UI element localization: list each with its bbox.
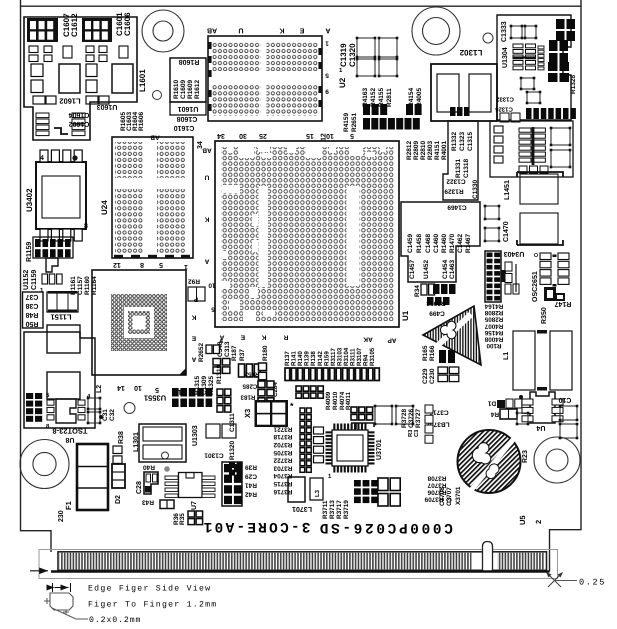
- svg-text:R2805: R2805: [484, 316, 503, 323]
- svg-text:C29: C29: [245, 472, 257, 479]
- svg-text:R3105: R3105: [369, 347, 376, 366]
- svg-text:R180: R180: [262, 345, 269, 361]
- svg-text:R1159: R1159: [26, 242, 33, 262]
- svg-text:5: 5: [211, 305, 215, 312]
- svg-text:C313: C313: [224, 341, 231, 357]
- svg-text:R1612: R1612: [194, 79, 201, 99]
- svg-text:U1603: U1603: [97, 103, 118, 110]
- svg-text:L1151: L1151: [51, 313, 72, 322]
- svg-text:R3716: R3716: [273, 488, 292, 495]
- svg-text:R100: R100: [486, 342, 502, 349]
- svg-text:R2809: R2809: [413, 140, 420, 160]
- svg-text:A: A: [191, 355, 196, 362]
- svg-text:U2: U2: [338, 77, 347, 88]
- svg-text:R1329: R1329: [444, 187, 464, 194]
- svg-text:30: 30: [239, 132, 247, 139]
- svg-text:X3: X3: [243, 409, 252, 418]
- svg-text:AB: AB: [207, 26, 217, 33]
- svg-text:R4001: R4001: [441, 140, 448, 160]
- svg-text:R92: R92: [188, 277, 200, 284]
- svg-text:C1454: C1454: [442, 259, 449, 279]
- svg-text:25: 25: [259, 132, 267, 139]
- svg-text:R1608: R1608: [179, 58, 200, 65]
- svg-text:C1311: C1311: [229, 413, 236, 432]
- svg-text:R166: R166: [429, 345, 436, 361]
- svg-text:U1601: U1601: [178, 105, 199, 112]
- svg-text:34: 34: [217, 132, 225, 139]
- svg-text:U24: U24: [100, 200, 109, 215]
- svg-text:TSOT23-8: TSOT23-8: [52, 427, 87, 436]
- svg-text:8: 8: [140, 261, 144, 268]
- svg-text:R152: R152: [244, 371, 259, 378]
- svg-text:R2812: R2812: [406, 140, 413, 160]
- svg-text:5: 5: [159, 261, 163, 268]
- svg-text:U3551: U3551: [144, 394, 166, 403]
- svg-text:C1322: C1322: [446, 177, 466, 184]
- svg-text:R: R: [283, 333, 288, 340]
- svg-text:C1315: C1315: [467, 131, 474, 151]
- svg-text:R40: R40: [143, 463, 155, 470]
- svg-text:R3721: R3721: [273, 425, 292, 432]
- svg-text:0.25: 0.25: [579, 578, 606, 588]
- svg-text:K: K: [191, 313, 196, 320]
- svg-text:R1467: R1467: [465, 233, 472, 253]
- svg-text:R3718: R3718: [273, 433, 292, 440]
- svg-text:U4: U4: [536, 424, 545, 431]
- svg-text:R1609: R1609: [187, 79, 194, 99]
- svg-text:C1460: C1460: [433, 233, 440, 253]
- svg-text:5: 5: [325, 71, 329, 78]
- svg-text:4: 4: [40, 155, 44, 162]
- svg-text:C3707: C3707: [446, 487, 453, 506]
- svg-text:R4: R4: [490, 410, 499, 417]
- svg-text:L1602: L1602: [59, 97, 80, 106]
- svg-text:C1319: C1319: [339, 43, 348, 67]
- svg-text:R3: R3: [407, 429, 414, 437]
- svg-text:3-CORE-A01: 3-CORE-A01: [201, 518, 310, 534]
- svg-text:R3708: R3708: [427, 474, 446, 481]
- svg-text:U5: U5: [518, 515, 527, 525]
- svg-text:U3402: U3402: [25, 188, 34, 212]
- svg-text:C1326: C1326: [495, 106, 513, 113]
- svg-text:R37: R37: [239, 349, 246, 361]
- svg-text:R4009: R4009: [325, 391, 332, 410]
- svg-text:10: 10: [208, 281, 216, 288]
- svg-text:U1452: U1452: [423, 259, 430, 279]
- svg-text:R1610: R1610: [173, 79, 180, 99]
- svg-text:12: 12: [113, 261, 121, 268]
- svg-text:F1: F1: [64, 501, 73, 510]
- svg-text:0.2x0.2mm: 0.2x0.2mm: [89, 616, 141, 625]
- svg-text:K: K: [261, 333, 266, 340]
- svg-text:R1331: R1331: [455, 158, 462, 178]
- svg-text:K: K: [279, 26, 284, 33]
- svg-text:R50: R50: [25, 320, 38, 327]
- svg-text:R3703: R3703: [273, 464, 292, 471]
- svg-text:R34: R34: [414, 285, 421, 297]
- svg-text:R1328: R1328: [570, 74, 577, 94]
- svg-text:D1: D1: [487, 399, 496, 406]
- svg-text:R1320: R1320: [229, 440, 236, 460]
- svg-text:C1604: C1604: [69, 111, 90, 118]
- svg-text:C37: C37: [25, 293, 38, 300]
- svg-text:5: 5: [350, 132, 354, 139]
- svg-text:C1463: C1463: [449, 259, 456, 279]
- svg-text:OSC2651: OSC2651: [532, 271, 539, 302]
- svg-text:C1608: C1608: [177, 115, 198, 122]
- svg-text:C000PC026-SD: C000PC026-SD: [317, 519, 453, 535]
- svg-text:R38: R38: [118, 431, 125, 444]
- svg-text:R3715: R3715: [273, 480, 292, 487]
- svg-text:5: 5: [155, 386, 159, 393]
- svg-text:L1601: L1601: [138, 69, 147, 92]
- svg-text:E: E: [191, 334, 196, 341]
- svg-text:R165: R165: [422, 345, 429, 361]
- svg-text:C1462: C1462: [457, 233, 464, 253]
- svg-text:R23: R23: [522, 450, 529, 463]
- svg-text:AP: AP: [387, 336, 397, 343]
- svg-text:R4164: R4164: [484, 302, 503, 309]
- svg-text:R2953: R2953: [426, 299, 446, 306]
- svg-text:C1159: C1159: [31, 270, 38, 290]
- svg-text:C38: C38: [25, 302, 38, 309]
- svg-text:U1304: U1304: [502, 47, 509, 68]
- svg-text:R43: R43: [142, 498, 154, 505]
- svg-text:R187: R187: [231, 345, 238, 361]
- svg-text:R3711: R3711: [322, 500, 329, 519]
- svg-text:R4151: R4151: [434, 140, 441, 160]
- svg-text:C1610: C1610: [174, 124, 195, 131]
- svg-text:R4010: R4010: [332, 391, 339, 410]
- svg-text:Edge Figer Side View: Edge Figer Side View: [88, 585, 211, 594]
- svg-text:A: A: [204, 257, 209, 264]
- svg-text:R1460: R1460: [441, 233, 448, 253]
- svg-text:L1: L1: [503, 352, 510, 360]
- svg-text:R4007: R4007: [484, 322, 503, 329]
- svg-text:C10: C10: [558, 396, 571, 403]
- svg-text:U1303: U1303: [192, 425, 199, 446]
- svg-text:9: 9: [325, 87, 329, 94]
- svg-text:R3719: R3719: [343, 500, 350, 519]
- svg-text:X3701: X3701: [455, 486, 462, 505]
- svg-text:R3713: R3713: [329, 500, 336, 519]
- svg-text:AB: AB: [202, 146, 212, 153]
- svg-text:C28: C28: [136, 481, 143, 494]
- svg-text:C1609: C1609: [180, 79, 187, 99]
- svg-text:U3403: U3403: [504, 250, 525, 257]
- svg-text:C1468: C1468: [425, 233, 432, 253]
- svg-text:L3: L3: [314, 489, 321, 497]
- svg-text:C1332: C1332: [496, 96, 514, 103]
- svg-text:C1301: C1301: [204, 451, 224, 458]
- svg-text:15: 15: [306, 132, 314, 139]
- svg-text:R3728: R3728: [401, 408, 408, 428]
- svg-text:C3708: C3708: [439, 487, 446, 506]
- svg-text:R2808: R2808: [484, 309, 503, 316]
- svg-text:C1469: C1469: [447, 203, 467, 210]
- svg-text:R41: R41: [245, 481, 257, 488]
- svg-text:R4156: R4156: [484, 329, 503, 336]
- svg-text:C1457: C1457: [409, 259, 416, 279]
- svg-text:C1330: C1330: [472, 179, 479, 199]
- svg-text:C1470: C1470: [503, 221, 510, 242]
- svg-text:C3726: C3726: [408, 408, 415, 428]
- svg-text:U: U: [204, 173, 209, 180]
- svg-text:C31: C31: [102, 409, 109, 421]
- svg-text:C32: C32: [109, 409, 116, 421]
- svg-text:R1458: R1458: [416, 233, 423, 253]
- svg-text:D2: D2: [115, 495, 122, 504]
- svg-text:R1332: R1332: [451, 131, 458, 151]
- svg-text:R1470: R1470: [449, 233, 456, 253]
- svg-text:R3717: R3717: [336, 500, 343, 519]
- svg-text:R2651: R2651: [351, 112, 358, 132]
- svg-text:U3701: U3701: [376, 439, 383, 460]
- svg-text:AK: AK: [363, 335, 373, 342]
- svg-text:E: E: [299, 26, 304, 33]
- svg-text:C1606: C1606: [123, 12, 132, 36]
- svg-text:C229: C229: [422, 368, 429, 384]
- svg-text:R4008: R4008: [484, 335, 503, 342]
- svg-text:R39: R39: [245, 463, 257, 470]
- svg-text:R3722: R3722: [273, 457, 292, 464]
- svg-text:R3704: R3704: [273, 472, 292, 479]
- svg-text:A: A: [325, 26, 330, 33]
- svg-text:1: 1: [325, 39, 329, 46]
- svg-text:C499: C499: [429, 309, 445, 316]
- svg-text:R2652: R2652: [198, 342, 205, 362]
- svg-text:R2810: R2810: [420, 140, 427, 160]
- svg-text:10: 10: [134, 384, 142, 391]
- svg-text:R3705: R3705: [273, 449, 292, 456]
- svg-text:10: 10: [326, 132, 334, 139]
- svg-text:Figer To Finger 1.2mm: Figer To Finger 1.2mm: [88, 601, 217, 610]
- svg-text:R3727: R3727: [415, 408, 422, 428]
- svg-text:R350: R350: [541, 307, 548, 324]
- svg-text:U1: U1: [401, 310, 410, 321]
- svg-text:L3701: L3701: [292, 505, 312, 512]
- svg-text:U: U: [238, 26, 243, 33]
- svg-text:R147: R147: [555, 300, 572, 307]
- svg-text:R183: R183: [240, 394, 255, 401]
- svg-text:R35: R35: [179, 513, 186, 525]
- svg-text:U8: U8: [65, 436, 74, 443]
- svg-text:C1323: C1323: [459, 131, 466, 151]
- svg-text:C1612: C1612: [70, 13, 79, 37]
- svg-text:R3702: R3702: [273, 441, 292, 448]
- svg-text:C3: C3: [413, 429, 420, 437]
- svg-text:1: 1: [184, 263, 188, 270]
- svg-text:R4159: R4159: [343, 112, 350, 132]
- svg-text:R1319: R1319: [216, 364, 223, 384]
- svg-text:K: K: [204, 215, 209, 222]
- svg-text:C1318: C1318: [463, 158, 470, 178]
- svg-text:C285: C285: [242, 383, 257, 390]
- svg-text:R48: R48: [25, 311, 38, 318]
- svg-text:U7: U7: [191, 501, 198, 510]
- svg-text:R42: R42: [245, 490, 257, 497]
- svg-text:C1320: C1320: [348, 43, 357, 67]
- svg-text:2: 2: [534, 520, 543, 524]
- svg-text:C1602: C1602: [69, 120, 90, 127]
- svg-text:R2803: R2803: [427, 140, 434, 160]
- svg-text:230: 230: [58, 510, 65, 522]
- svg-text:E: E: [240, 333, 245, 340]
- svg-text:14: 14: [117, 384, 125, 391]
- svg-text:C230: C230: [429, 368, 436, 384]
- svg-text:R1160: R1160: [84, 276, 91, 295]
- svg-text:L1451: L1451: [504, 180, 511, 200]
- svg-text:8: 8: [84, 223, 88, 230]
- svg-text:C1459: C1459: [407, 233, 414, 253]
- svg-text:P: P: [193, 295, 198, 302]
- svg-text:U1152: U1152: [23, 270, 30, 290]
- svg-text:AB: AB: [150, 133, 160, 140]
- svg-text:*: *: [290, 401, 294, 411]
- svg-text:L2: L2: [96, 385, 103, 393]
- svg-text:R1606: R1606: [138, 111, 145, 131]
- svg-text:L1302: L1302: [459, 48, 482, 57]
- svg-text:C1333: C1333: [501, 21, 508, 42]
